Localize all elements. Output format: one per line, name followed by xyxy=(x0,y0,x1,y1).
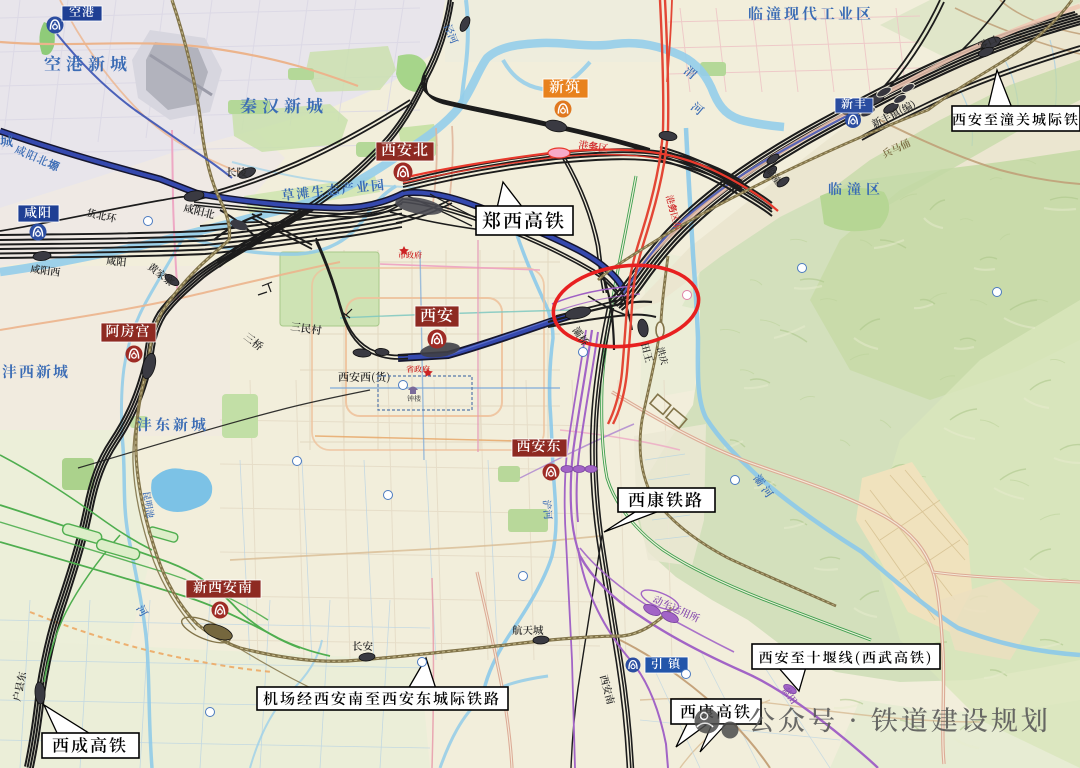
svg-text:城: 城 xyxy=(0,131,13,150)
svg-text:秦汉新城: 秦汉新城 xyxy=(240,92,328,117)
svg-text:引 镇: 引 镇 xyxy=(651,655,681,672)
svg-text:航天城: 航天城 xyxy=(512,623,544,638)
svg-text:郑西高铁: 郑西高铁 xyxy=(482,207,566,234)
svg-text:临潼区: 临潼区 xyxy=(828,179,885,199)
svg-text:浐河: 浐河 xyxy=(540,499,557,520)
svg-text:西安东: 西安东 xyxy=(517,436,562,456)
svg-text:公众号 · 铁道建设规划: 公众号 · 铁道建设规划 xyxy=(748,699,1051,738)
svg-text:临潼现代工业区: 临潼现代工业区 xyxy=(748,3,874,24)
svg-text:新西安南: 新西安南 xyxy=(193,577,253,597)
svg-text:机场经西安南至西安东城际铁路: 机场经西安南至西安东城际铁路 xyxy=(263,688,501,709)
svg-text:长陵: 长陵 xyxy=(226,165,247,180)
svg-text:西康铁路: 西康铁路 xyxy=(628,486,704,511)
svg-text:西安至潼关城际铁: 西安至潼关城际铁 xyxy=(952,110,1080,130)
svg-text:沣西新城: 沣西新城 xyxy=(2,361,70,382)
svg-text:阿房宫: 阿房宫 xyxy=(106,321,151,341)
svg-text:空港: 空港 xyxy=(69,3,95,20)
svg-text:西成高铁: 西成高铁 xyxy=(52,732,128,757)
svg-text:西安北: 西安北 xyxy=(381,139,429,160)
svg-text:新丰: 新丰 xyxy=(841,95,867,112)
svg-text:空港新城: 空港新城 xyxy=(44,50,132,75)
svg-text:咸阳: 咸阳 xyxy=(106,252,127,269)
svg-text:沣东新城: 沣东新城 xyxy=(137,414,209,435)
svg-text:西安: 西安 xyxy=(420,303,454,326)
svg-text:咸阳: 咸阳 xyxy=(24,202,52,221)
svg-text:钟楼: 钟楼 xyxy=(407,394,421,404)
svg-text:长安: 长安 xyxy=(352,639,373,654)
svg-text:西安至十堰线(西武高铁): 西安至十堰线(西武高铁) xyxy=(759,648,934,668)
svg-text:西安西(货): 西安西(货) xyxy=(338,369,390,385)
svg-text:新筑: 新筑 xyxy=(549,76,581,97)
